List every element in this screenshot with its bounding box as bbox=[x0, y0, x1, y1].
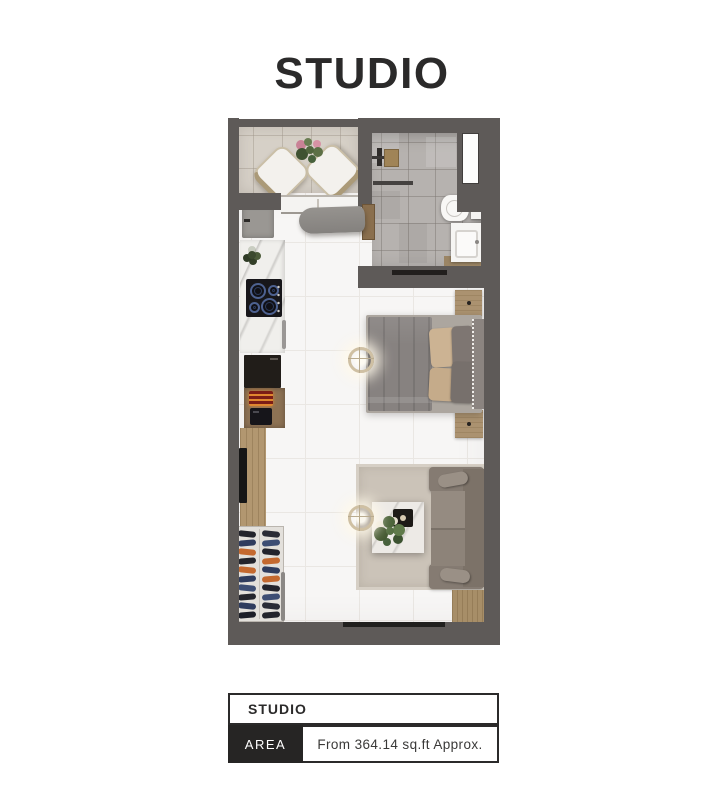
nightstand bbox=[455, 290, 482, 316]
sink-basin bbox=[455, 230, 478, 258]
shoe bbox=[262, 611, 280, 619]
floor-plan bbox=[228, 118, 500, 645]
shoe-column bbox=[262, 531, 280, 618]
dark-counter-section bbox=[244, 355, 281, 388]
bathroom-tile-shade bbox=[372, 191, 400, 219]
tv-panel bbox=[239, 448, 247, 503]
microwave-appliance bbox=[250, 408, 272, 425]
sofa-seat-cushion bbox=[431, 491, 465, 530]
shoe-column bbox=[238, 531, 256, 618]
shoe bbox=[262, 566, 281, 574]
toaster-appliance bbox=[249, 391, 273, 406]
hob-knobs bbox=[277, 283, 280, 313]
page-title: STUDIO bbox=[0, 51, 724, 97]
bed-blanket bbox=[368, 317, 432, 411]
bathroom-window bbox=[462, 133, 479, 184]
wall-balcony-bathroom-divider bbox=[358, 118, 372, 207]
bathroom-tile-shade bbox=[426, 137, 456, 167]
shoe bbox=[238, 593, 256, 601]
unit-type-label: STUDIO bbox=[248, 701, 307, 717]
balcony-plant bbox=[306, 146, 314, 154]
shoe bbox=[262, 593, 280, 601]
gas-hob bbox=[246, 279, 282, 317]
shoe bbox=[262, 530, 281, 538]
page: { "title": "STUDIO", "info_table": { "na… bbox=[0, 0, 724, 800]
shoe bbox=[238, 584, 257, 592]
shoe bbox=[262, 539, 280, 547]
faucet-icon bbox=[475, 240, 479, 244]
sofa bbox=[429, 467, 484, 589]
bathroom-tile-shade bbox=[399, 223, 427, 263]
shoe-rack bbox=[234, 526, 284, 622]
ceiling-light-living bbox=[348, 505, 374, 531]
wall-top-balcony bbox=[228, 119, 365, 127]
shoe bbox=[238, 611, 256, 619]
shoe bbox=[238, 530, 257, 538]
shoe bbox=[238, 539, 256, 547]
bathroom-wall-slot bbox=[392, 270, 447, 275]
shoe bbox=[238, 566, 257, 574]
nightstand bbox=[455, 410, 483, 438]
wall-right bbox=[484, 118, 500, 645]
shoe-rack-divider bbox=[259, 529, 260, 619]
wall-balcony-stub bbox=[228, 193, 281, 210]
headboard bbox=[472, 319, 484, 409]
shower-glass-partition bbox=[373, 181, 413, 185]
burner bbox=[261, 298, 278, 315]
sink-vanity bbox=[451, 223, 481, 262]
shoe bbox=[238, 602, 257, 610]
shoe bbox=[262, 584, 281, 592]
burner bbox=[250, 283, 266, 299]
unit-type-row: STUDIO bbox=[228, 693, 499, 725]
sofa-back bbox=[463, 469, 484, 587]
decor-tray bbox=[393, 509, 413, 527]
shoe-rack-handle bbox=[281, 572, 285, 621]
shoe bbox=[262, 548, 281, 556]
shoe bbox=[262, 557, 280, 565]
shower-shelf bbox=[384, 149, 399, 167]
coffee-table-plant bbox=[386, 527, 394, 535]
area-row: AREA From 364.14 sq.ft Approx. bbox=[228, 725, 499, 763]
info-table: STUDIO AREA From 364.14 sq.ft Approx. bbox=[228, 693, 499, 763]
side-table bbox=[452, 590, 484, 622]
kitchen-plant bbox=[248, 251, 256, 259]
wall-right-bathroom bbox=[481, 133, 485, 288]
bathroom-door-open bbox=[299, 206, 366, 234]
burner bbox=[249, 302, 260, 313]
coffee-table bbox=[372, 502, 424, 553]
bottom-wall-window bbox=[343, 622, 445, 627]
shoe bbox=[262, 602, 281, 610]
bed bbox=[366, 315, 482, 413]
cabinet-handle bbox=[282, 320, 286, 349]
shoe bbox=[238, 575, 256, 583]
shoe bbox=[238, 548, 257, 556]
sofa-seat-cushion bbox=[431, 530, 465, 566]
shoe bbox=[262, 575, 280, 583]
area-value: From 364.14 sq.ft Approx. bbox=[303, 725, 499, 763]
area-label: AREA bbox=[228, 725, 303, 763]
ceiling-light-bedroom bbox=[348, 347, 374, 373]
shoe bbox=[238, 557, 256, 565]
